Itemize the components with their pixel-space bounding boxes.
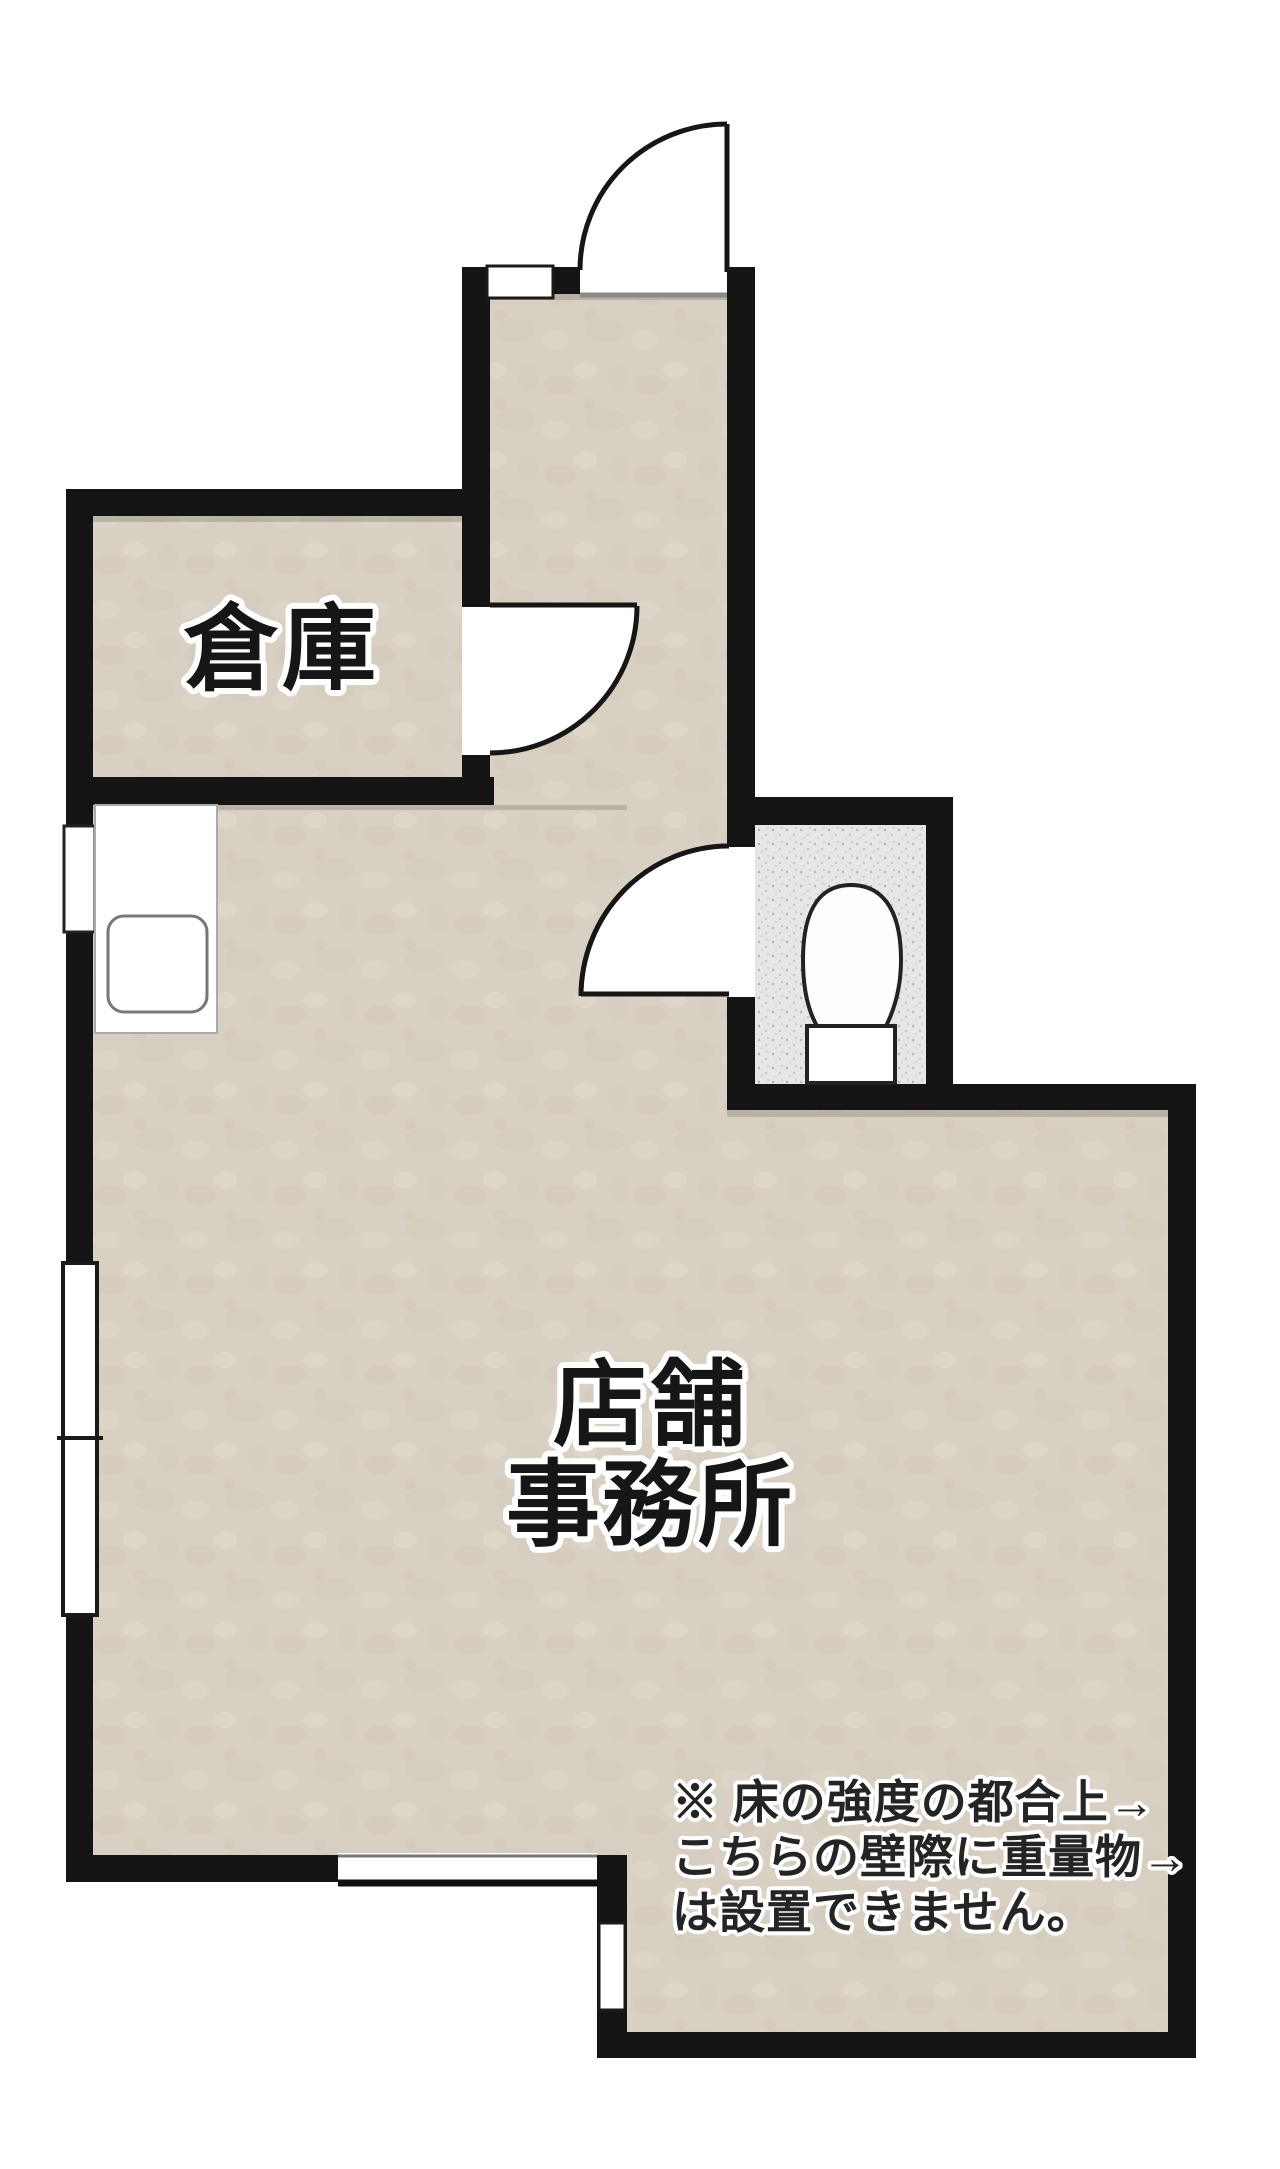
wall-bottom-left [66, 1855, 338, 1882]
toilet-bowl [803, 885, 901, 1026]
window-left-upper [64, 826, 95, 932]
wall-storage-top [66, 489, 490, 516]
wall-bottom [597, 2032, 1196, 2058]
wall-mid-band [727, 1084, 1196, 1110]
note-line2: こちらの壁際に重量物→ [672, 1831, 1189, 1883]
sink [108, 916, 207, 1012]
entrance-door-arc [580, 124, 727, 270]
floors [93, 294, 1168, 2032]
wall-right [1168, 1084, 1196, 2058]
shadow-storage-top [93, 516, 462, 522]
window-top-wall [487, 266, 553, 298]
shop-office-label-line2: 事務所 [506, 1452, 794, 1557]
toilet-tank [807, 1026, 895, 1083]
wall-toilet-top [727, 797, 953, 825]
note-line1: ※ 床の強度の都合上→ [672, 1776, 1156, 1828]
wall-storage-bottom [66, 777, 494, 805]
storage-room-label: 倉庫 [183, 596, 380, 701]
floor-plan-svg: 倉庫 店舗 事務所 ※ 床の強度の都合上→ こちらの壁際に重量物→ は設置できま… [0, 0, 1280, 2169]
shop-office-label-line1: 店舗 [553, 1352, 749, 1457]
wall-toilet-right [926, 797, 953, 1110]
floor-plan-page: 倉庫 店舗 事務所 ※ 床の強度の都合上→ こちらの壁際に重量物→ は設置できま… [0, 0, 1280, 2169]
window-step-wall [599, 1923, 625, 2010]
note-line3: は設置できません。 [672, 1886, 1094, 1938]
wall-left [66, 489, 93, 1882]
wall-top-segment [552, 267, 580, 294]
shadow-lower-top [727, 1110, 1168, 1117]
toilet-doorway-gap [727, 847, 755, 997]
wall-corridor-left-upper [462, 267, 490, 607]
